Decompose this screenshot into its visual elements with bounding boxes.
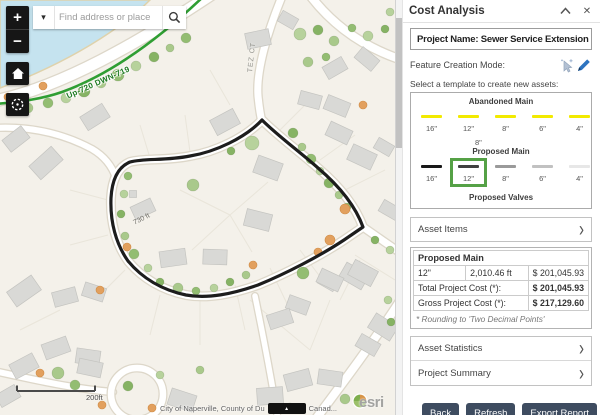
- tree-icon: [120, 190, 128, 198]
- tree-icon: [210, 284, 218, 292]
- gross-cost-value: $ 217,129.60: [528, 296, 588, 311]
- house: [51, 287, 78, 308]
- template-prompt: Select a template to create new assets:: [410, 79, 592, 89]
- tree-icon: [245, 136, 259, 150]
- tree-icon: [386, 246, 394, 254]
- house: [325, 121, 353, 145]
- shrub-icon: [36, 369, 44, 377]
- panel-body: Project Name: Sewer Service Extension Fe…: [410, 22, 592, 415]
- smart-cursor-icon: [560, 58, 574, 73]
- collapse-panel-button[interactable]: [556, 3, 574, 19]
- house: [378, 199, 395, 220]
- shrub-icon: [325, 235, 335, 245]
- tree-icon: [371, 236, 379, 244]
- tree-icon: [43, 98, 53, 108]
- tree-icon: [117, 210, 125, 218]
- search-bar: ▾: [33, 6, 186, 29]
- tree-icon: [226, 278, 234, 286]
- project-summary-section[interactable]: Project Summary ›: [411, 361, 591, 385]
- tree-icon: [297, 267, 309, 279]
- tree-icon: [242, 271, 250, 279]
- app-window: Up-720 DWN-719 TEZ CT 730 ft + − ▾: [0, 0, 600, 415]
- shrub-icon: [340, 204, 350, 214]
- search-input[interactable]: [55, 12, 162, 23]
- shrub-icon: [359, 101, 367, 109]
- cost-results-table: Proposed Main 12" 2,010.46 ft $ 201,045.…: [413, 250, 589, 311]
- select-mode-button[interactable]: [558, 57, 575, 73]
- tree-icon: [288, 128, 298, 138]
- tree-icon: [112, 69, 124, 81]
- house: [317, 369, 343, 387]
- tree-icon: [181, 33, 191, 43]
- locate-button[interactable]: [6, 93, 29, 116]
- tree-icon: [313, 25, 323, 35]
- pipe-swatch-icon: [532, 165, 553, 168]
- close-panel-button[interactable]: ✕: [578, 3, 596, 19]
- template-gallery: Abandoned Main 16"12"8"6"4" 8" Proposed …: [410, 92, 592, 209]
- asset-length-cell: 2,010.46 ft: [466, 266, 529, 281]
- export-report-button[interactable]: Export Report: [522, 403, 597, 415]
- tree-icon: [61, 93, 71, 103]
- home-button[interactable]: [6, 62, 29, 85]
- pipe-swatch-icon: [569, 165, 590, 168]
- tree-icon: [121, 232, 129, 240]
- template-item[interactable]: 12": [450, 108, 487, 137]
- basemap: [0, 0, 395, 415]
- buildings: [0, 10, 395, 412]
- template-item[interactable]: 16": [413, 158, 450, 187]
- tree-icon: [387, 318, 395, 326]
- shrub-icon: [249, 261, 257, 269]
- group-title-valves: Proposed Valves: [411, 193, 591, 202]
- table-row: 12" 2,010.46 ft $ 201,045.93: [414, 266, 589, 281]
- pipe-swatch-icon: [495, 115, 516, 118]
- cost-results-box: Proposed Main 12" 2,010.46 ft $ 201,045.…: [410, 247, 592, 329]
- search-button[interactable]: [162, 6, 186, 29]
- tree-icon: [70, 380, 80, 390]
- template-item[interactable]: 12": [450, 158, 487, 187]
- house: [210, 108, 241, 135]
- esri-logo: esri: [352, 392, 394, 413]
- abandoned-main-templates: 16"12"8"6"4": [411, 108, 591, 137]
- panel-title: Cost Analysis: [402, 5, 556, 17]
- tree-icon: [348, 24, 356, 32]
- tree-icon: [166, 44, 174, 52]
- house: [243, 209, 272, 232]
- template-item[interactable]: 16": [413, 108, 450, 137]
- pipe-swatch-icon: [421, 165, 442, 168]
- template-item[interactable]: 8": [487, 108, 524, 137]
- shrub-icon: [148, 404, 156, 412]
- house: [29, 146, 63, 179]
- draw-mode-button[interactable]: [575, 57, 592, 73]
- template-item-label: 16": [426, 174, 437, 183]
- template-item-label: 12": [463, 124, 474, 133]
- attribution-expand-button[interactable]: ▲: [268, 403, 306, 414]
- tree-icon: [294, 28, 306, 40]
- rounding-footnote: * Rounding to 'Two Decimal Points': [413, 311, 589, 326]
- shrub-icon: [98, 401, 106, 409]
- template-item[interactable]: 6": [524, 108, 561, 137]
- table-row: Total Project Cost (*): $ 201,045.93: [414, 281, 589, 296]
- pipe-swatch-icon: [569, 115, 590, 118]
- locate-icon: [10, 97, 25, 112]
- tree-icon: [149, 52, 159, 62]
- tree-icon: [322, 53, 330, 61]
- tree-icon: [131, 61, 141, 71]
- pipe-swatch-icon: [458, 115, 479, 118]
- house: [373, 137, 395, 156]
- tree-icon: [196, 366, 204, 374]
- gross-cost-label: Gross Project Cost (*):: [414, 296, 529, 311]
- house: [41, 336, 71, 360]
- zoom-out-button[interactable]: −: [6, 30, 29, 53]
- tree-icon: [303, 57, 313, 67]
- tree-icon: [78, 85, 90, 97]
- house: [7, 275, 42, 307]
- asset-statistics-section[interactable]: Asset Statistics ›: [411, 337, 591, 361]
- attribution-text-left: City of Naperville, County of Du: [160, 404, 265, 413]
- tree-icon: [298, 143, 306, 151]
- extra-sections: Asset Statistics › Project Summary ›: [410, 336, 592, 386]
- project-summary-label: Project Summary: [418, 368, 579, 379]
- pipe-swatch-icon: [421, 115, 442, 118]
- group-title-abandoned: Abandoned Main: [411, 97, 591, 106]
- template-item-label: 6": [539, 124, 546, 133]
- pencil-icon: [576, 57, 592, 73]
- template-item-label: 16": [426, 124, 437, 133]
- project-name-box: Project Name: Sewer Service Extension: [410, 28, 592, 50]
- orphan-template-label[interactable]: 8": [411, 138, 591, 147]
- minus-icon: −: [13, 34, 22, 49]
- esri-wordmark: esri: [359, 394, 384, 411]
- tree-icon: [227, 147, 235, 155]
- attribution-bar: City of Naperville, County of Du ▲ Canad…: [160, 403, 337, 414]
- template-item-label: 6": [539, 174, 546, 183]
- pipe-swatch-icon: [458, 165, 479, 168]
- template-item[interactable]: 4": [561, 108, 592, 137]
- results-header: Proposed Main: [414, 251, 589, 266]
- asset-items-section[interactable]: Asset Items ›: [410, 217, 592, 242]
- tree-icon: [123, 381, 133, 391]
- panel-header: Cost Analysis ✕: [402, 0, 600, 23]
- pipe-swatch-icon: [532, 115, 553, 118]
- house: [347, 144, 378, 170]
- proposed-main-templates: 16"12"8"6"4": [411, 158, 591, 187]
- plus-icon: +: [13, 10, 22, 25]
- house: [316, 268, 344, 292]
- template-item-label: 8": [502, 174, 509, 183]
- scrollbar-thumb[interactable]: [396, 18, 402, 148]
- tree-icon: [144, 264, 152, 272]
- tree-icon: [386, 8, 394, 16]
- template-item-label: 8": [502, 124, 509, 133]
- tree-icon: [340, 394, 350, 404]
- shrub-icon: [39, 82, 47, 90]
- feature-creation-mode-row: Feature Creation Mode:: [410, 55, 592, 75]
- map-canvas[interactable]: Up-720 DWN-719 TEZ CT 730 ft + − ▾: [0, 0, 395, 415]
- back-button[interactable]: Back: [422, 403, 459, 415]
- tree-icon: [156, 371, 164, 379]
- house: [266, 308, 293, 330]
- tree-icon: [329, 36, 339, 46]
- chevron-right-icon: ›: [579, 363, 584, 384]
- pipe-swatch-icon: [495, 165, 516, 168]
- house: [298, 90, 323, 109]
- template-item[interactable]: 6": [524, 158, 561, 187]
- template-item-label: 4": [576, 174, 583, 183]
- house: [283, 368, 313, 391]
- house: [130, 191, 137, 198]
- action-buttons: Back Refresh Export Report: [410, 403, 592, 415]
- asset-size-cell: 12": [414, 266, 466, 281]
- zoom-in-button[interactable]: +: [6, 6, 29, 30]
- total-cost-label: Total Project Cost (*):: [414, 281, 529, 296]
- template-item-label: 4": [576, 124, 583, 133]
- total-cost-value: $ 201,045.93: [528, 281, 588, 296]
- tree-icon: [187, 179, 199, 191]
- template-item[interactable]: 8": [487, 158, 524, 187]
- zoom-control: + −: [6, 6, 29, 53]
- feature-creation-mode-label: Feature Creation Mode:: [410, 60, 558, 70]
- template-item-label: 12": [463, 174, 474, 183]
- panel-scrollbar: [396, 0, 403, 415]
- house: [80, 103, 111, 130]
- asset-cost-cell: $ 201,045.93: [528, 266, 588, 281]
- chevron-right-icon: ›: [579, 219, 584, 240]
- asset-items-label: Asset Items: [418, 224, 579, 235]
- search-icon: [168, 11, 181, 24]
- chevron-up-icon: [560, 7, 571, 15]
- house: [159, 248, 187, 267]
- attribution-text-right: Canad...: [309, 404, 337, 413]
- tree-icon: [384, 296, 392, 304]
- tree-icon: [129, 249, 139, 259]
- shrub-icon: [123, 243, 131, 251]
- shrub-icon: [96, 286, 104, 294]
- chevron-right-icon: ›: [579, 338, 584, 359]
- tree-icon: [96, 78, 106, 88]
- home-icon: [11, 67, 25, 80]
- search-source-dropdown[interactable]: ▾: [33, 6, 55, 29]
- table-row: Gross Project Cost (*): $ 217,129.60: [414, 296, 589, 311]
- template-item[interactable]: 4": [561, 158, 592, 187]
- cost-analysis-panel: Cost Analysis ✕ Project Name: Sewer Serv…: [395, 0, 600, 415]
- house: [130, 198, 156, 220]
- house: [323, 95, 351, 118]
- tree-icon: [381, 25, 389, 33]
- group-title-proposed: Proposed Main: [411, 147, 591, 156]
- tree-icon: [363, 31, 373, 41]
- tree-icon: [192, 287, 200, 295]
- house: [253, 155, 284, 181]
- asset-statistics-label: Asset Statistics: [418, 343, 579, 354]
- house: [0, 384, 21, 407]
- refresh-button[interactable]: Refresh: [466, 403, 515, 415]
- tree-icon: [52, 367, 64, 379]
- tree-icon: [124, 172, 132, 180]
- house: [203, 249, 228, 265]
